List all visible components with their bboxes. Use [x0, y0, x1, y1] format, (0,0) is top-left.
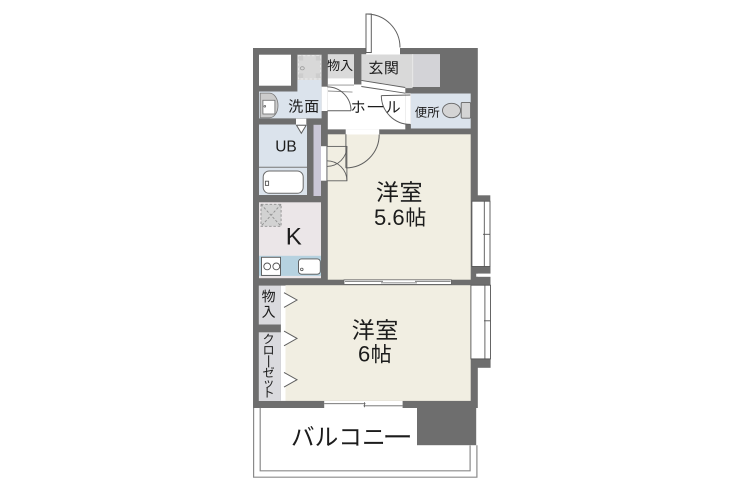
svg-text:5.6: 5.6 [374, 205, 405, 230]
svg-text:K: K [286, 223, 302, 250]
svg-text:UB: UB [275, 139, 297, 156]
svg-text:6: 6 [358, 342, 370, 367]
